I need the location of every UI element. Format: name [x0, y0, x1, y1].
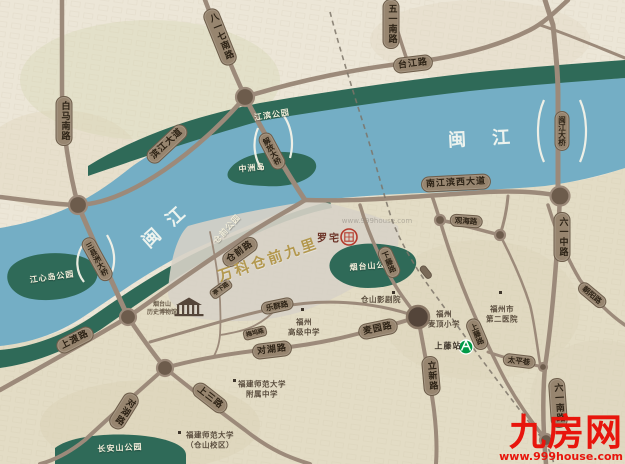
park-label-changanshan: 长安山公园: [97, 441, 143, 454]
metro-station-label: 上藤站: [435, 341, 462, 352]
road-label-baima-south: 白马南路: [56, 96, 73, 146]
museum-label: 烟台山 历史博物馆: [147, 301, 177, 317]
museum-label-line2: 历史博物馆: [147, 309, 177, 316]
road-label-liuyi-middle: 六一中路: [554, 212, 571, 262]
bridge-label-minjiang: 闽江大桥: [555, 111, 570, 151]
site-logo[interactable]: 九房网 www.999house.com: [499, 413, 623, 463]
map-canvas: 闽江 闽江 江滨公园 中洲岛 仓前公园 江心岛公园 烟台山公园 长安山公园 白马…: [0, 0, 625, 464]
poi-luozhai: 罗宅: [317, 230, 341, 245]
poi-second-hospital: 福州市 第二医院: [486, 304, 518, 324]
poi-fuzhou-highschool: 福州 高级中学: [288, 317, 320, 337]
poi-theater: 仓山影剧院: [361, 295, 401, 305]
site-logo-text[interactable]: 九房网: [499, 413, 623, 451]
road-label-lixin: 立新路: [421, 355, 441, 396]
poi-fnu-cangshan-campus: 福建师范大学 （仓山校区）: [186, 430, 234, 450]
site-logo-url[interactable]: www.999house.com: [499, 451, 623, 463]
museum-label-line1: 烟台山: [153, 301, 171, 308]
road-label-wuyi-south: 五一南路: [383, 0, 400, 49]
poi-fnu-affiliated-school: 福建师范大学 附属中学: [238, 379, 286, 399]
river-name-right: 闽江: [447, 122, 536, 153]
road-label-guanhai: 观海路: [449, 213, 482, 228]
poi-maiding-school: 福州 麦顶小学: [428, 309, 460, 329]
watermark: www.999house.com: [342, 217, 412, 225]
